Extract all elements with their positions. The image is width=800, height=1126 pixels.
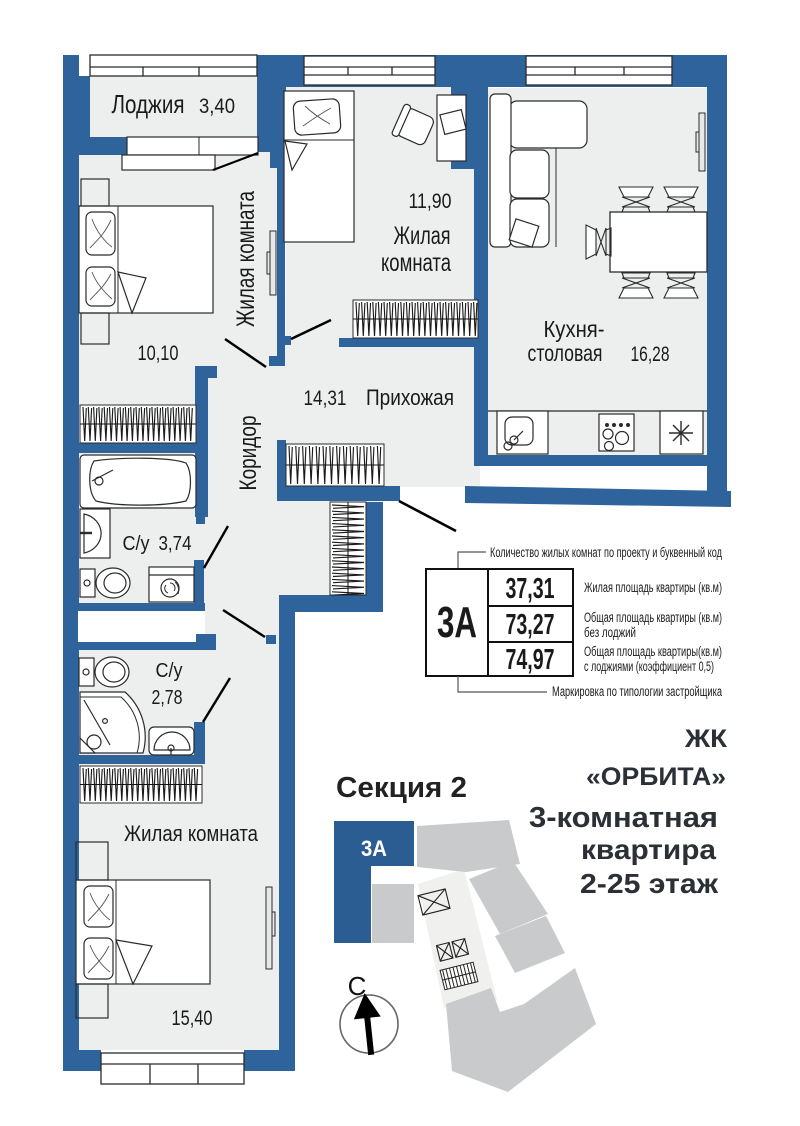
svg-text:С/у: С/у: [156, 660, 183, 682]
svg-text:16,28: 16,28: [631, 343, 670, 366]
svg-text:Кухня-: Кухня-: [544, 316, 605, 342]
svg-text:3,40: 3,40: [199, 95, 235, 118]
svg-text:Коридор: Коридор: [235, 416, 262, 491]
svg-text:11,90: 11,90: [409, 190, 452, 213]
svg-text:2,78: 2,78: [152, 687, 183, 709]
svg-text:Маркировка по типологии застро: Маркировка по типологии застройщика: [552, 684, 722, 699]
svg-text:столовая: столовая: [528, 340, 603, 366]
svg-text:Общая площадь квартиры(кв.м): Общая площадь квартиры(кв.м): [584, 644, 722, 659]
svg-text:3-комнатная: 3-комнатная: [529, 802, 718, 834]
svg-text:квартира: квартира: [581, 834, 716, 865]
svg-text:3А: 3А: [437, 598, 477, 647]
svg-text:2-25 этаж: 2-25 этаж: [580, 868, 719, 899]
svg-text:Количество жилых комнат по про: Количество жилых комнат по проекту и бук…: [490, 545, 722, 560]
svg-text:с лоджиями (коэффициент 0,5): с лоджиями (коэффициент 0,5): [584, 659, 714, 674]
svg-text:Лоджия: Лоджия: [112, 89, 185, 119]
svg-text:без лоджий: без лоджий: [584, 625, 636, 640]
svg-text:14,31: 14,31: [304, 387, 347, 410]
svg-text:73,27: 73,27: [506, 609, 555, 641]
svg-text:«ОРБИТА»: «ОРБИТА»: [586, 763, 726, 791]
svg-text:Секция 2: Секция 2: [336, 772, 467, 804]
svg-text:Жилая: Жилая: [394, 222, 451, 250]
svg-text:10,10: 10,10: [138, 342, 179, 365]
svg-text:Жилая комната: Жилая комната: [124, 821, 259, 846]
svg-text:3,74: 3,74: [159, 533, 192, 555]
svg-text:комната: комната: [381, 249, 451, 277]
svg-text:С/у: С/у: [123, 533, 150, 555]
svg-text:37,31: 37,31: [506, 573, 555, 605]
svg-text:Общая площадь квартиры (кв.м): Общая площадь квартиры (кв.м): [584, 610, 722, 625]
svg-text:15,40: 15,40: [172, 1007, 213, 1030]
svg-text:74,97: 74,97: [506, 644, 555, 676]
svg-text:3А: 3А: [361, 836, 387, 861]
svg-text:Жилая площадь квартиры (кв.м): Жилая площадь квартиры (кв.м): [584, 580, 722, 595]
svg-text:Жилая комната: Жилая комната: [232, 191, 260, 327]
svg-text:ЖК: ЖК: [684, 725, 728, 753]
svg-text:Прихожая: Прихожая: [366, 385, 454, 410]
svg-text:С: С: [348, 971, 367, 1001]
